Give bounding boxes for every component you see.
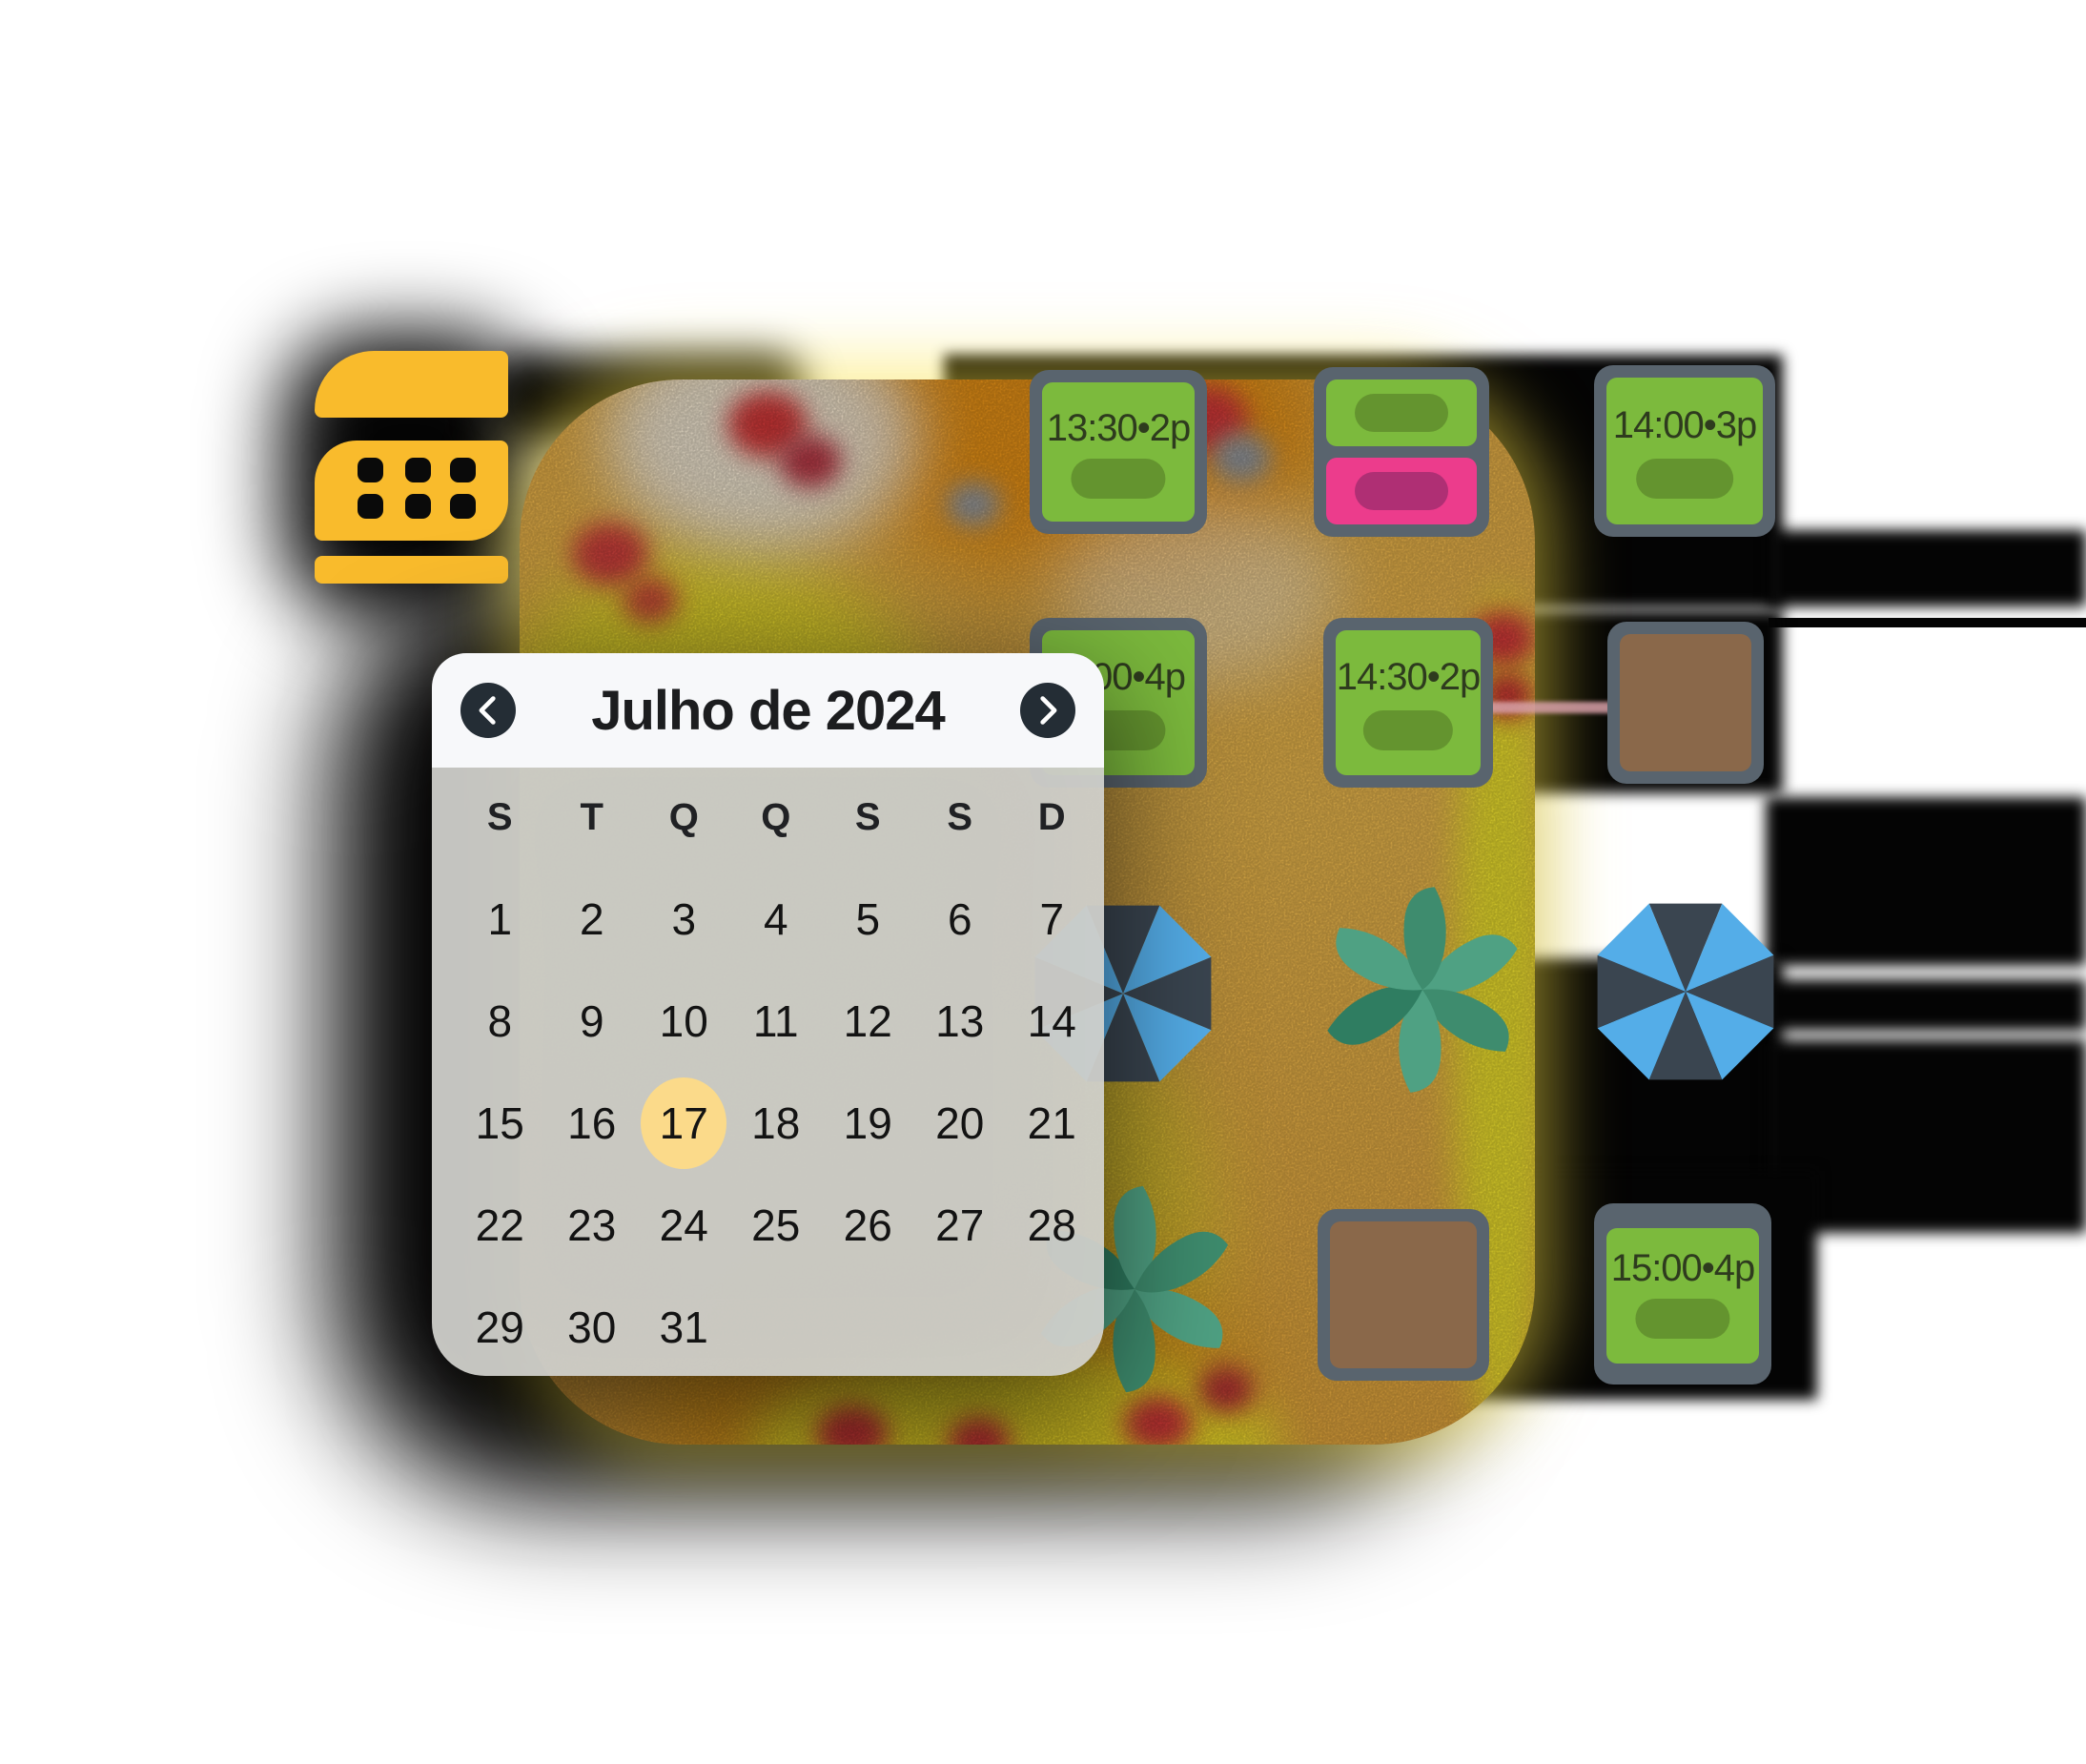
day-cell[interactable]: 6 — [914, 868, 1007, 970]
day-cell[interactable]: 16 — [546, 1072, 639, 1174]
calendar-grid: STQQSSD123456789101112131415161718192021… — [454, 768, 1098, 1378]
day-number: 5 — [855, 893, 880, 945]
day-cell[interactable]: 21 — [1006, 1072, 1098, 1174]
day-number: 19 — [844, 1097, 892, 1149]
stage: 13:30•2p 14:00•3p 00•4p 14:30•2p — [0, 0, 2086, 1764]
shadow-strip-row1-tail — [1769, 530, 2086, 606]
date-picker-header: Julho de 2024 — [432, 653, 1104, 768]
reservation-time-label: 14:30•2p — [1336, 656, 1481, 699]
day-cell[interactable]: 19 — [822, 1072, 914, 1174]
prev-month-button[interactable] — [460, 683, 516, 738]
reservation-pill — [1636, 459, 1733, 499]
day-cell[interactable]: 30 — [546, 1276, 639, 1378]
empty-day-cell — [730, 1276, 823, 1378]
empty-table — [1318, 1209, 1489, 1381]
reservation-card[interactable]: 15:00•4p — [1594, 1203, 1771, 1385]
reservation-pill — [1635, 1299, 1729, 1339]
reservation-time-label: 15:00•4p — [1606, 1247, 1759, 1290]
day-cell[interactable]: 11 — [730, 970, 823, 1072]
reservation-pill — [1071, 459, 1165, 499]
day-cell[interactable]: 15 — [454, 1072, 546, 1174]
patio-umbrella-icon — [1590, 896, 1781, 1087]
day-number: 10 — [660, 995, 708, 1047]
empty-day-cell — [914, 1276, 1007, 1378]
chevron-left-icon — [476, 695, 501, 726]
day-cell[interactable]: 5 — [822, 868, 914, 970]
shadow-strip-row2-tail — [1766, 797, 2086, 966]
day-number: 8 — [487, 995, 512, 1047]
weekday-label: S — [454, 768, 546, 868]
weekday-label: Q — [730, 768, 823, 868]
reservation-card-split[interactable] — [1314, 367, 1489, 537]
day-number: 14 — [1028, 995, 1076, 1047]
day-cell[interactable]: 14 — [1006, 970, 1098, 1072]
reservation-pill — [1355, 472, 1448, 510]
reservation-pill — [1355, 394, 1448, 432]
day-cell[interactable]: 31 — [638, 1276, 730, 1378]
day-number: 25 — [751, 1200, 800, 1251]
day-cell[interactable]: 29 — [454, 1276, 546, 1378]
day-cell[interactable]: 18 — [730, 1072, 823, 1174]
day-cell[interactable]: 17 — [638, 1072, 730, 1174]
reservation-card[interactable]: 14:00•3p — [1594, 365, 1775, 537]
day-number: 22 — [476, 1200, 524, 1251]
day-number: 17 — [660, 1097, 708, 1149]
day-number: 6 — [948, 893, 972, 945]
day-number: 24 — [660, 1200, 708, 1251]
day-number: 31 — [660, 1302, 708, 1353]
reservation-card[interactable]: 13:30•2p — [1030, 370, 1207, 534]
day-cell[interactable]: 1 — [454, 868, 546, 970]
day-number: 11 — [753, 995, 799, 1047]
day-number: 16 — [567, 1097, 616, 1149]
weekday-label: D — [1006, 768, 1098, 868]
day-cell[interactable]: 3 — [638, 868, 730, 970]
day-cell[interactable]: 4 — [730, 868, 823, 970]
day-number: 2 — [580, 893, 604, 945]
day-number: 9 — [580, 995, 604, 1047]
day-cell[interactable]: 10 — [638, 970, 730, 1072]
day-cell[interactable]: 25 — [730, 1174, 823, 1276]
day-number: 13 — [935, 995, 984, 1047]
plant-icon — [1313, 880, 1532, 1099]
chevron-right-icon — [1035, 695, 1060, 726]
day-cell[interactable]: 24 — [638, 1174, 730, 1276]
empty-day-cell — [822, 1276, 914, 1378]
day-cell[interactable]: 9 — [546, 970, 639, 1072]
shadow-strip-row3-tail-a — [1766, 979, 2086, 1031]
date-picker-body: STQQSSD123456789101112131415161718192021… — [432, 768, 1104, 1376]
day-number: 23 — [567, 1200, 616, 1251]
day-number: 26 — [844, 1200, 892, 1251]
day-cell[interactable]: 23 — [546, 1174, 639, 1276]
day-number: 4 — [764, 893, 788, 945]
day-cell[interactable]: 2 — [546, 868, 639, 970]
day-cell[interactable]: 26 — [822, 1174, 914, 1276]
day-number: 7 — [1039, 893, 1064, 945]
shadow-line-row1-tail — [1769, 618, 2086, 627]
day-cell[interactable]: 20 — [914, 1072, 1007, 1174]
empty-day-cell — [1006, 1276, 1098, 1378]
month-title: Julho de 2024 — [591, 679, 945, 743]
weekday-label: T — [546, 768, 639, 868]
day-cell[interactable]: 27 — [914, 1174, 1007, 1276]
day-number: 1 — [487, 893, 512, 945]
day-number: 27 — [935, 1200, 984, 1251]
day-number: 20 — [935, 1097, 984, 1149]
day-number: 15 — [476, 1097, 524, 1149]
reservation-card[interactable]: 14:30•2p — [1323, 618, 1493, 788]
reservation-time-label: 14:00•3p — [1606, 404, 1763, 447]
date-picker: Julho de 2024 STQQSSD1234567891011121314… — [432, 653, 1104, 1376]
empty-table — [1607, 622, 1764, 784]
day-cell[interactable]: 28 — [1006, 1174, 1098, 1276]
calendar-logo-icon — [315, 351, 508, 585]
day-number: 30 — [567, 1302, 616, 1353]
weekday-label: Q — [638, 768, 730, 868]
day-number: 18 — [751, 1097, 800, 1149]
day-number: 28 — [1028, 1200, 1076, 1251]
day-number: 21 — [1028, 1097, 1076, 1149]
day-number: 29 — [476, 1302, 524, 1353]
heat-connector-line — [1485, 702, 1611, 713]
day-cell[interactable]: 13 — [914, 970, 1007, 1072]
day-cell[interactable]: 7 — [1006, 868, 1098, 970]
next-month-button[interactable] — [1020, 683, 1075, 738]
day-number: 3 — [671, 893, 696, 945]
day-cell[interactable]: 12 — [822, 970, 914, 1072]
reservation-time-label: 13:30•2p — [1042, 407, 1195, 450]
day-cell[interactable]: 8 — [454, 970, 546, 1072]
weekday-label: S — [822, 768, 914, 868]
day-number: 12 — [844, 995, 892, 1047]
day-cell[interactable]: 22 — [454, 1174, 546, 1276]
weekday-label: S — [914, 768, 1007, 868]
reservation-pill — [1363, 710, 1453, 750]
